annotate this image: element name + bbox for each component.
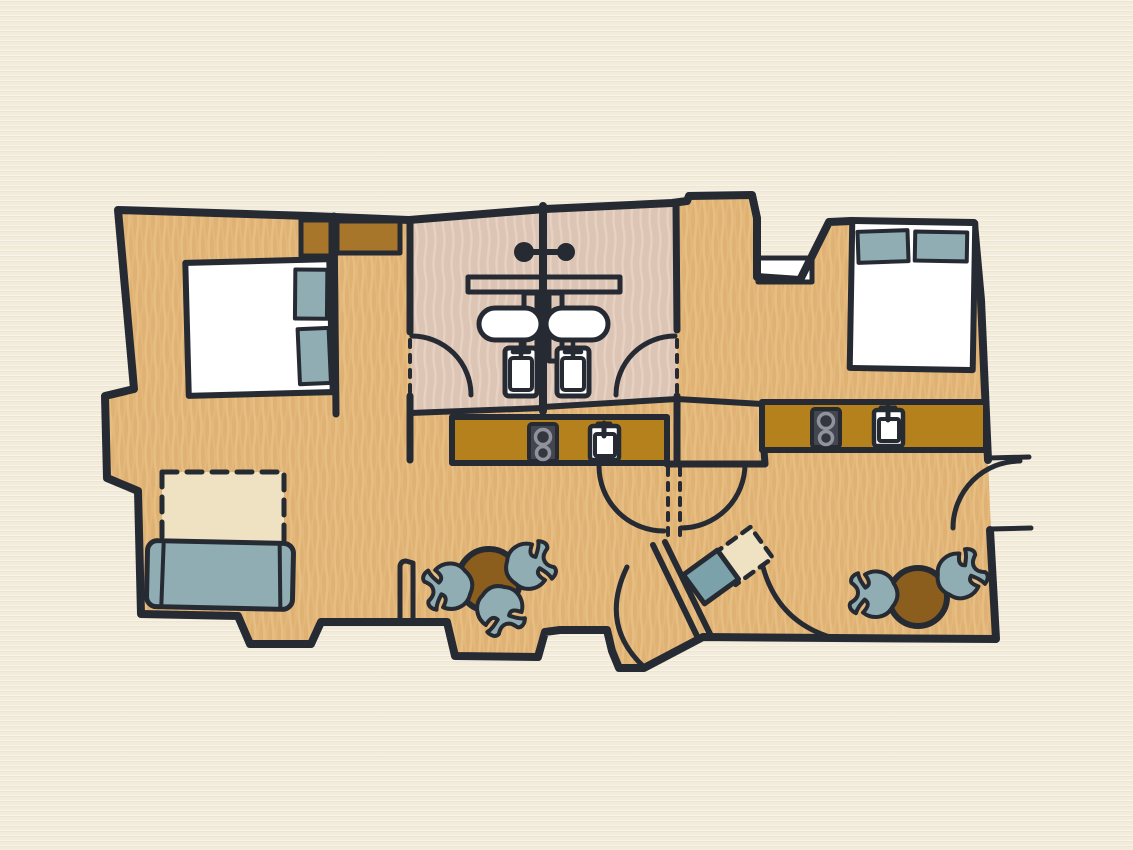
right-chair-1	[849, 570, 898, 618]
left-burner-1	[536, 430, 551, 445]
wardrobe-small	[301, 220, 331, 256]
wash-basin-right	[546, 308, 608, 340]
right-burner-2	[820, 432, 833, 445]
right-pillow-2	[915, 232, 967, 262]
left-burner-2	[537, 447, 550, 460]
left-pillow-1	[295, 269, 327, 318]
left-pillow-2	[298, 328, 331, 384]
right-burner-1	[819, 414, 834, 429]
right-bed	[850, 221, 976, 370]
shower-head-right	[557, 243, 575, 261]
right-kitchenette	[762, 402, 986, 450]
toilet-left	[505, 342, 537, 396]
sofa	[146, 540, 293, 609]
left-bed	[185, 259, 332, 396]
left-counter	[452, 417, 667, 463]
fold-out-rug	[162, 472, 284, 545]
right-pillow-1	[857, 230, 908, 263]
shower-head-left	[514, 242, 534, 262]
left-kitchenette	[452, 417, 667, 463]
wardrobe-large	[337, 221, 400, 253]
sofa-body	[146, 540, 293, 609]
wash-basin-left	[479, 308, 541, 340]
floor-plan-illustration	[0, 0, 1133, 850]
floor-plan-canvas	[0, 0, 1133, 850]
toilet-right	[557, 342, 589, 396]
